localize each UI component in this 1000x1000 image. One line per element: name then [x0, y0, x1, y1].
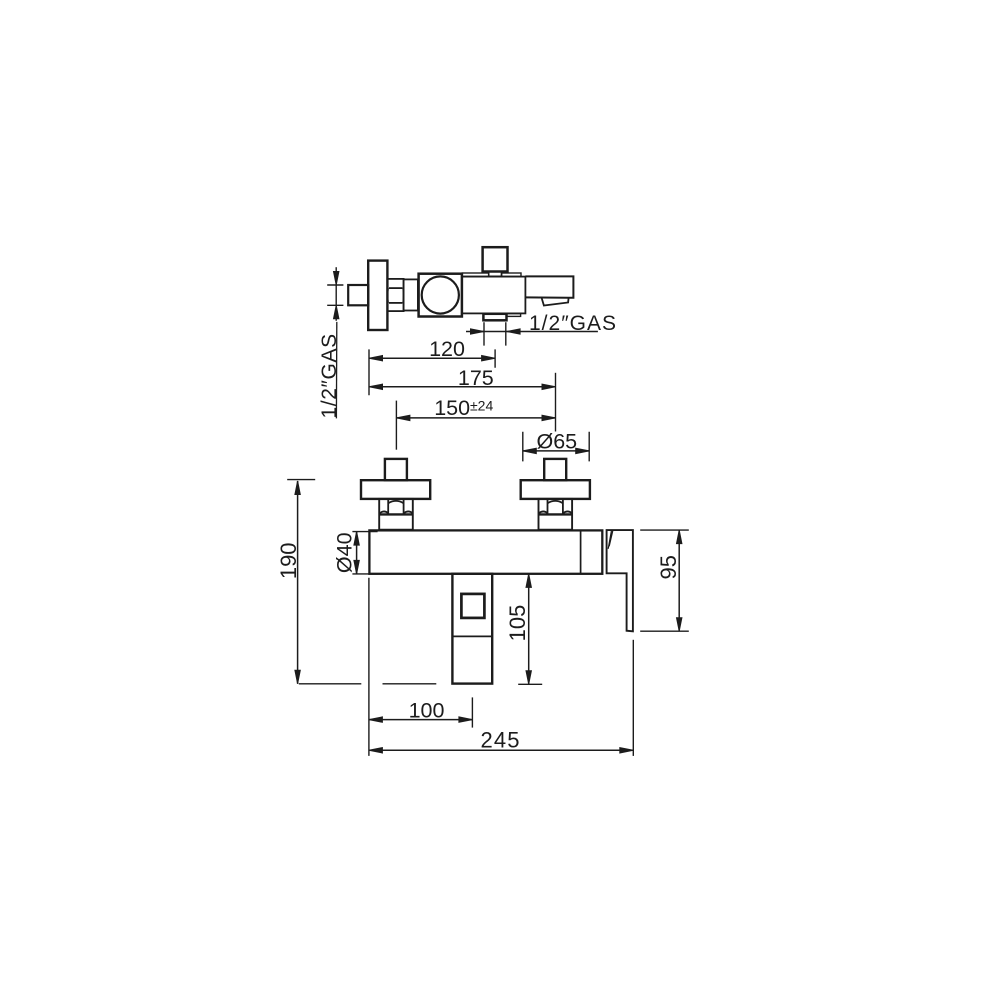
- svg-text:175: 175: [458, 366, 494, 390]
- svg-text:190: 190: [276, 542, 301, 579]
- svg-text:105: 105: [505, 605, 530, 642]
- svg-text:100: 100: [409, 698, 445, 722]
- svg-text:±24: ±24: [470, 397, 493, 413]
- svg-text:Ø65: Ø65: [536, 430, 577, 454]
- svg-text:245: 245: [480, 727, 520, 752]
- svg-text:Ø40: Ø40: [333, 532, 357, 573]
- svg-text:120: 120: [429, 337, 465, 361]
- svg-text:150: 150: [434, 396, 470, 420]
- svg-text:1/2″GAS: 1/2″GAS: [318, 333, 341, 418]
- svg-text:1/2″GAS: 1/2″GAS: [529, 312, 617, 335]
- svg-text:95: 95: [656, 555, 681, 579]
